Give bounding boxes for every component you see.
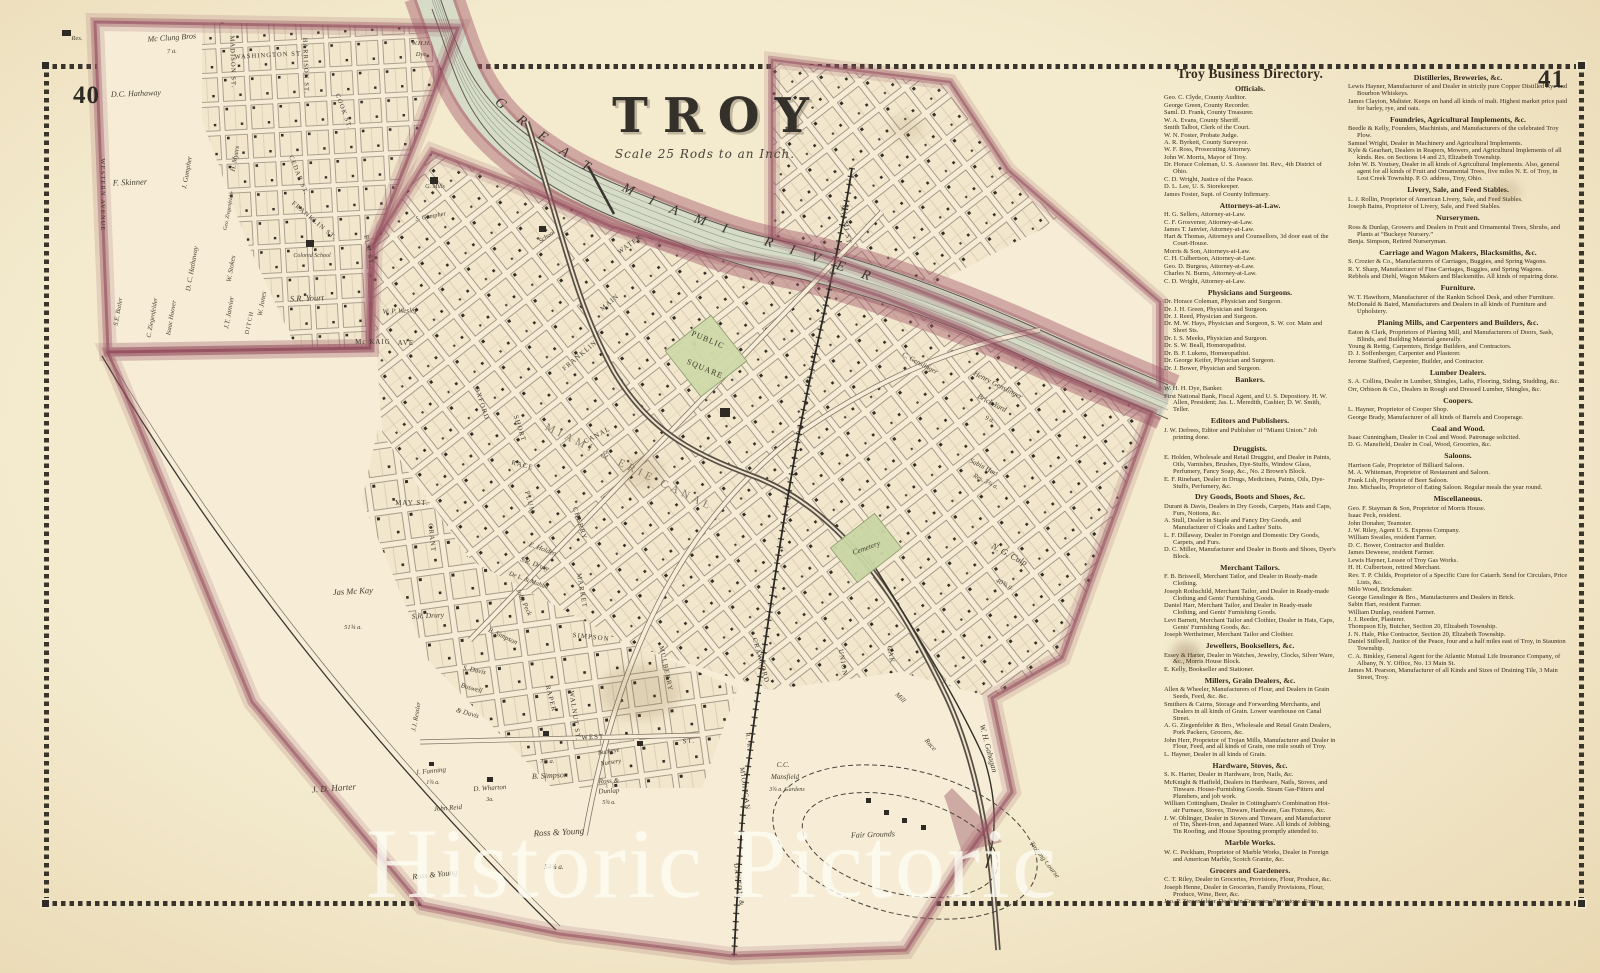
directory-section: Distilleries, Breweries, &c. Lewis Hayne… — [1348, 74, 1568, 113]
map-label: Res. — [70, 35, 82, 42]
directory-section-heading: Coal and Wood. — [1348, 425, 1568, 434]
directory-section-heading: Druggists. — [1164, 445, 1336, 454]
map-label: S.R. Yourt — [290, 292, 325, 303]
directory-right-column: Distilleries, Breweries, &c. Lewis Hayne… — [1348, 71, 1568, 903]
directory-section-heading: Millers, Grain Dealers, &c. — [1164, 677, 1336, 686]
map-label: 7 a. — [167, 48, 178, 56]
directory-entry: Lewis Hayner, Manufacturer of and Dealer… — [1348, 84, 1568, 98]
directory-entry: John Herr, Proprietor of Trojan Mills, M… — [1164, 738, 1336, 752]
directory-section: Livery, Sale, and Feed Stables. L. J. Ro… — [1348, 186, 1568, 211]
directory-sections-right: Distilleries, Breweries, &c. Lewis Hayne… — [1348, 74, 1568, 682]
directory-entries: Allen & Wheeler, Manufacturers of Flour,… — [1164, 687, 1336, 759]
directory-entry: F. B. Briswell, Merchant Tailor, and Dea… — [1164, 574, 1336, 588]
directory-entries: W. T. Hawthorn, Manufacturer of the Rank… — [1348, 295, 1568, 316]
map-label: W.H.H. — [411, 40, 430, 47]
directory-entry: Joseph Wertheimer, Merchant Tailor and C… — [1164, 632, 1336, 639]
paper-stain — [1172, 642, 1200, 666]
directory-section-heading: Dry Goods, Boots and Shoes, &c. — [1164, 493, 1336, 502]
directory-entries: Harrison Gale, Proprietor of Billiard Sa… — [1348, 463, 1568, 492]
directory-entry: William Cottingham, Dealer in Cottingham… — [1164, 801, 1336, 815]
directory-section-heading: Furniture. — [1348, 284, 1568, 293]
directory-entry: Joseph Rothschild, Merchant Tailor, and … — [1164, 589, 1336, 603]
directory-section: Dry Goods, Boots and Shoes, &c. Durant &… — [1164, 493, 1336, 561]
directory-entry: Dr. M. W. Hays, Physician and Surgeon, S… — [1164, 321, 1336, 335]
directory-entries: Dr. Horace Coleman, Physician and Surgeo… — [1164, 299, 1336, 373]
directory-section: Coopers. L. Hayner, Proprietor of Cooper… — [1348, 397, 1568, 422]
directory-section-heading: Coopers. — [1348, 397, 1568, 406]
directory-section: Hardware, Stoves, &c. S. K. Harter, Deal… — [1164, 762, 1336, 837]
map-label: S.R. Drury — [412, 610, 445, 621]
directory-entries: Isaac Cunningham, Dealer in Coal and Woo… — [1348, 435, 1568, 449]
directory-entry: Daniel Harr, Merchant Tailor, and Dealer… — [1164, 603, 1336, 617]
directory-section-heading: Distilleries, Breweries, &c. — [1348, 74, 1568, 83]
directory-entry: Jno. Michaelis, Proprietor of Eating Sal… — [1348, 485, 1568, 492]
directory-entry: Benja. Simpson, Retired Nurseryman. — [1348, 239, 1568, 246]
directory-entry: Hart & Thomas, Attorneys and Counsellors… — [1164, 234, 1336, 248]
directory-section: Furniture. W. T. Hawthorn, Manufacturer … — [1348, 284, 1568, 316]
directory-section: Marble Works. W. C. Peckham, Proprietor … — [1164, 839, 1336, 863]
directory-section: Millers, Grain Dealers, &c. Allen & Whee… — [1164, 677, 1336, 759]
map-label: 1¾ a. — [426, 780, 440, 786]
map-label: D.C. Hathaway — [110, 88, 162, 99]
directory-entry: Durant & Davis, Dealers in Dry Goods, Ca… — [1164, 504, 1336, 518]
map-label: F. Skinner — [112, 176, 148, 187]
map-label: Colored School — [293, 253, 331, 259]
directory-section: Grocers and Gardeners. C. T. Riley, Deal… — [1164, 867, 1336, 903]
map-label: 51¾ a. — [344, 624, 362, 631]
directory-title: Troy Business Directory. — [1164, 67, 1336, 82]
map-label: WESTERN AVENUE — [99, 158, 106, 231]
directory-section-heading: Miscellaneous. — [1348, 495, 1568, 504]
directory-section-heading: Hardware, Stoves, &c. — [1164, 762, 1336, 771]
directory-entries: Lewis Hayner, Manufacturer of and Dealer… — [1348, 84, 1568, 112]
directory-entries: H. G. Sellers, Attorney-at-Law.C. F. Gro… — [1164, 212, 1336, 286]
directory-section: Foundries, Agricultural Implements, &c. … — [1348, 116, 1568, 184]
directory-entries: E. Holden, Wholesale and Retail Druggist… — [1164, 455, 1336, 490]
directory-section: Planing Mills, and Carpenters and Builde… — [1348, 319, 1568, 366]
map-label: Jas Mc Kay — [333, 585, 374, 597]
directory-section-heading: Saloons. — [1348, 452, 1568, 461]
map-scale-note: Scale 25 Rods to an Inch. — [560, 147, 850, 161]
directory-section-heading: Physicians and Surgeons. — [1164, 289, 1336, 298]
map-label: Dunlap — [597, 786, 620, 795]
directory-entry: McKnight & Hatfield, Dealers in Hardware… — [1164, 780, 1336, 801]
directory-entries: L. Hayner, Proprietor of Cooper Shop.Geo… — [1348, 407, 1568, 421]
map-label: B. Simpson — [532, 770, 568, 781]
paper-stain — [1490, 180, 1520, 202]
directory-section-heading: Attorneys-at-Law. — [1164, 202, 1336, 211]
directory-entry: Kyle & Gearhart, Dealers in Reapers, Mow… — [1348, 148, 1568, 162]
directory-entry: Rev. T. P. Childs, Proprietor of a Speci… — [1348, 573, 1568, 587]
map-label: MAY ST. — [395, 500, 429, 507]
directory-section-heading: Merchant Tailors. — [1164, 564, 1336, 573]
map-label: W. P. Wesley — [382, 306, 418, 315]
directory-entry: Rebhols and Diehl, Wagon Makers and Blac… — [1348, 274, 1568, 281]
directory-section-heading: Lumber Dealers. — [1348, 369, 1568, 378]
directory-section-heading: Grocers and Gardeners. — [1164, 867, 1336, 876]
directory-entry: First National Bank, Fiscal Agent, and U… — [1164, 394, 1336, 415]
directory-entry: C. D. Wright, Attorney-at-Law. — [1164, 279, 1336, 286]
map-label: G. Mills — [425, 184, 445, 190]
map-label: C.C. — [777, 761, 790, 769]
directory-section-heading: Foundries, Agricultural Implements, &c. — [1348, 116, 1568, 125]
directory-entry: Beedle & Kelly, Founders, Machinists, an… — [1348, 126, 1568, 140]
map-label: 7¾ a. — [540, 758, 555, 765]
directory-entry: Dr. Horace Coleman, U. S. Assessor Int. … — [1164, 162, 1336, 176]
directory-section-heading: Carriage and Wagon Makers, Blacksmiths, … — [1348, 249, 1568, 258]
directory-entry: C. A. Binkley, General Agent for the Atl… — [1348, 654, 1568, 668]
directory-section-heading: Officials. — [1164, 85, 1336, 94]
directory-entry: Dr. Horace Coleman, Physician and Surgeo… — [1164, 299, 1336, 306]
directory-entry: Eaton & Clark, Proprietors of Planing Mi… — [1348, 330, 1568, 344]
directory-section: Officials. Geo. C. Clyde, County Auditor… — [1164, 85, 1336, 199]
directory-entry: Joseph Henne, Dealer in Groceries, Famil… — [1164, 885, 1336, 899]
directory-entry: J. W. Defrees, Editor and Publisher of “… — [1164, 428, 1336, 442]
directory-entry: Dr. J. Bower, Physician and Surgeon. — [1164, 366, 1336, 373]
directory-entry: Levi Barnett, Merchant Tailor and Clothi… — [1164, 618, 1336, 632]
paper-stain — [890, 115, 924, 141]
directory-entries: Eaton & Clark, Proprietors of Planing Mi… — [1348, 330, 1568, 366]
directory-section: Druggists. E. Holden, Wholesale and Reta… — [1164, 445, 1336, 491]
directory-section-heading: Nurserymen. — [1348, 214, 1568, 223]
directory-entries: S. A. Collins, Dealer in Lumber, Shingle… — [1348, 379, 1568, 393]
map-label: Ross & — [597, 776, 619, 785]
directory-entry: D. G. Mansfield, Dealer in Coal, Wood, G… — [1348, 442, 1568, 449]
atlas-sheet: { "page": { "left_number": "40", "right_… — [0, 0, 1600, 973]
directory-entry: E. Kelly, Bookseller and Stationer. — [1164, 667, 1336, 674]
map-label: Dye — [415, 51, 427, 58]
directory-section: Merchant Tailors. F. B. Briswell, Mercha… — [1164, 564, 1336, 639]
directory-entry: James Foster, Supt. of County Infirmary. — [1164, 192, 1336, 199]
page-number-right: 41 — [1538, 66, 1565, 94]
directory-section-heading: Livery, Sale, and Feed Stables. — [1348, 186, 1568, 195]
directory-entry: James M. Pearson, Manufacturer of all Ki… — [1348, 668, 1568, 682]
directory-section: Saloons. Harrison Gale, Proprietor of Bi… — [1348, 452, 1568, 492]
directory-entry: Smithers & Cairns, Storage and Forwardin… — [1164, 702, 1336, 723]
directory-entry: W. C. Peckham, Proprietor of Marble Work… — [1164, 850, 1336, 864]
directory-section: Nurserymen. Ross & Dunlap, Growers and D… — [1348, 214, 1568, 246]
directory-section: Carriage and Wagon Makers, Blacksmiths, … — [1348, 249, 1568, 281]
directory-entry: Allen & Wheeler, Manufacturers of Flour,… — [1164, 687, 1336, 701]
directory-entry: D. C. Miller, Manufacturer and Dealer in… — [1164, 547, 1336, 561]
directory-entry: A. G. Ziegenfelder & Bro., Wholesale and… — [1164, 723, 1336, 737]
directory-entry: George Brady, Manufacturer of all kinds … — [1348, 415, 1568, 422]
directory-entries: Geo. C. Clyde, County Auditor.George Gre… — [1164, 95, 1336, 198]
directory-entry: Daniel Stillwell, Justice of the Peace, … — [1348, 639, 1568, 653]
directory-entries: Ross & Dunlap, Growers and Dealers in Fr… — [1348, 225, 1568, 246]
directory-section-heading: Bankers. — [1164, 376, 1336, 385]
directory-section: Bankers. W. H. H. Dye, Banker.First Nati… — [1164, 376, 1336, 415]
directory-entry: Orr, Orbison & Co., Dealers in Rough and… — [1348, 387, 1568, 394]
map-label: 3¾ a. Gardens — [768, 787, 805, 793]
map-label: ST. — [682, 738, 695, 746]
paper-stain — [620, 455, 664, 489]
directory-entry: Joseph Bains, Proprietor of Livery, Sale… — [1348, 204, 1568, 211]
directory-entry: A. Stull, Dealer in Staple and Fancy Dry… — [1164, 518, 1336, 532]
page-number-left: 40 — [73, 82, 100, 110]
directory-entry: J. W. Oblinger, Dealer in Stoves and Tin… — [1164, 816, 1336, 837]
directory-entry: Sabin Hart, resident Farmer. — [1348, 602, 1568, 609]
directory-entries: C. T. Riley, Dealer in Groceries, Provis… — [1164, 877, 1336, 903]
directory-entries: Geo. F. Stayman & Son, Proprietor of Mor… — [1348, 506, 1568, 682]
directory-entry: Ross & Dunlap, Growers and Dealers in Fr… — [1348, 225, 1568, 239]
directory-entry: L. Hayner, Dealer in all kinds of Grain. — [1164, 752, 1336, 759]
directory-entries: Beedle & Kelly, Founders, Machinists, an… — [1348, 126, 1568, 183]
directory-entries: S. K. Harter, Dealer in Hardware, Iron, … — [1164, 772, 1336, 836]
map-label: AVE — [398, 340, 414, 347]
directory-section: Editors and Publishers. J. W. Defrees, E… — [1164, 417, 1336, 441]
directory-entries: Durant & Davis, Dealers in Dry Goods, Ca… — [1164, 504, 1336, 561]
directory-entry: E. Holden, Wholesale and Retail Druggist… — [1164, 455, 1336, 476]
directory-sections-left: Officials. Geo. C. Clyde, County Auditor… — [1164, 85, 1336, 903]
directory-section: Lumber Dealers. S. A. Collins, Dealer in… — [1348, 369, 1568, 394]
directory-section: Physicians and Surgeons. Dr. Horace Cole… — [1164, 289, 1336, 373]
directory-section-heading: Planing Mills, and Carpenters and Builde… — [1348, 319, 1568, 328]
directory-section-heading: Editors and Publishers. — [1164, 417, 1336, 426]
directory-entries: J. W. Defrees, Editor and Publisher of “… — [1164, 428, 1336, 442]
directory-entries: W. H. H. Dye, Banker.First National Bank… — [1164, 386, 1336, 414]
directory-entry: Jerome Stafford, Carpenter, Builder, and… — [1348, 359, 1568, 366]
directory-entries: W. C. Peckham, Proprietor of Marble Work… — [1164, 850, 1336, 864]
map-label: 3a. — [485, 797, 494, 803]
directory-entry: Jno. P. Ziegenfelder, Dealer in Grocerie… — [1164, 899, 1336, 903]
map-label: Mansfield — [770, 773, 799, 781]
map-label: Mc KAIG — [355, 339, 390, 346]
directory-entries: F. B. Briswell, Merchant Tailor, and Dea… — [1164, 574, 1336, 639]
directory-entry: James Clayton, Maltster. Keeps on hand a… — [1348, 99, 1568, 113]
map-title: TROY — [553, 88, 868, 144]
directory-section: Attorneys-at-Law. H. G. Sellers, Attorne… — [1164, 202, 1336, 286]
directory-entry: W. H. H. Dye, Banker. — [1164, 386, 1336, 393]
directory-entries: L. J. Rollin, Proprietor of American Liv… — [1348, 197, 1568, 211]
directory-entry: H. G. Sellers, Attorney-at-Law. — [1164, 212, 1336, 219]
paper-stain — [600, 665, 680, 720]
directory-entry: John W. B. Youtsey, Dealer in all kinds … — [1348, 162, 1568, 183]
directory-section: Coal and Wood. Isaac Cunningham, Dealer … — [1348, 425, 1568, 450]
directory-entry: McDonald & Baird, Manufacturers and Deal… — [1348, 302, 1568, 316]
directory-entry: E. F. Rinehart, Dealer in Drugs, Medicin… — [1164, 477, 1336, 491]
watermark: Historic Pictoric — [366, 806, 1058, 921]
directory-left-column: Troy Business Directory. Officials. Geo.… — [1164, 67, 1336, 903]
directory-entry: L. F. Dillaway, Dealer in Foreign and Do… — [1164, 533, 1336, 547]
directory-section-heading: Marble Works. — [1164, 839, 1336, 848]
directory-entries: S. Crozier & Co., Manufacturers of Carri… — [1348, 259, 1568, 281]
directory-section: Miscellaneous. Geo. F. Stayman & Son, Pr… — [1348, 495, 1568, 682]
